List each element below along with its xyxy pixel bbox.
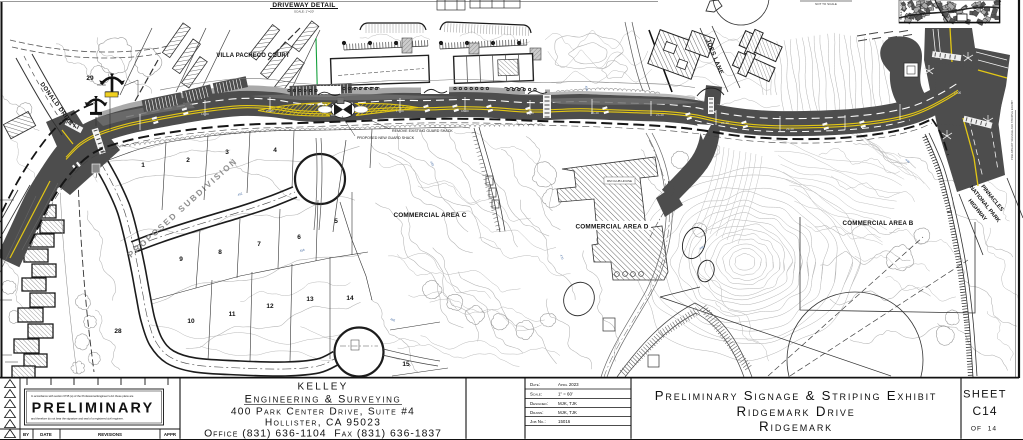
svg-text:400 Park Center Drive, Suite #: 400 Park Center Drive, Suite #4	[231, 407, 415, 418]
svg-text:SHEET: SHEET	[963, 389, 1007, 401]
svg-text:23+00: 23+00	[786, 127, 794, 131]
svg-text:2: 2	[186, 157, 190, 164]
svg-text:W16-9P: W16-9P	[86, 101, 97, 105]
svg-text:In accordance with section 673: In accordance with section 6735 (a) of t…	[31, 394, 134, 398]
svg-text:1: 1	[141, 162, 145, 169]
svg-text:VO-60: VO-60	[97, 83, 106, 87]
svg-text:REMOVE EXISTING GUARD SHACK: REMOVE EXISTING GUARD SHACK	[392, 129, 453, 133]
svg-text:VILLA PACHECO COURT: VILLA PACHECO COURT	[216, 53, 289, 59]
svg-text:April 2023: April 2023	[558, 382, 579, 387]
svg-text:RM CLUB HOUSE: RM CLUB HOUSE	[607, 179, 632, 183]
svg-text:APPR: APPR	[164, 432, 177, 437]
svg-text:8: 8	[218, 249, 222, 256]
svg-text:Preliminary Signage & Striping: Preliminary Signage & Striping Exhibit	[655, 388, 937, 403]
svg-text:NOT TO SCALE: NOT TO SCALE	[815, 2, 837, 6]
svg-text:COMMERCIAL AREA D: COMMERCIAL AREA D	[575, 224, 648, 231]
svg-text:SCALE: 1"=20': SCALE: 1"=20'	[294, 10, 314, 14]
svg-text:13: 13	[306, 296, 314, 303]
svg-text:MJK, TJK: MJK, TJK	[558, 401, 577, 406]
svg-text:BY: BY	[23, 432, 29, 437]
svg-text:11: 11	[229, 311, 236, 318]
svg-text:Date:: Date:	[530, 382, 540, 387]
svg-text:MJK, TJK: MJK, TJK	[558, 410, 577, 415]
svg-text:C14: C14	[972, 404, 997, 418]
svg-text:3: 3	[225, 149, 229, 156]
svg-text:9: 9	[179, 256, 183, 263]
svg-text:Hollister, CA 95023: Hollister, CA 95023	[265, 418, 381, 429]
svg-text:21+00: 21+00	[656, 113, 664, 117]
svg-text:COMMERCIAL AREA C: COMMERCIAL AREA C	[393, 212, 466, 219]
svg-text:Ridgemark Drive: Ridgemark Drive	[736, 404, 855, 419]
svg-text:OF 14: OF 14	[971, 426, 997, 433]
svg-text:1" = 60': 1" = 60'	[558, 392, 573, 397]
svg-text:7: 7	[257, 241, 261, 248]
svg-text:Ridgemark: Ridgemark	[759, 419, 833, 434]
svg-text:12: 12	[266, 303, 274, 310]
svg-text:PRELIMINARY SIGNAGE AND STRIPI: PRELIMINARY SIGNAGE AND STRIPING EXHIBIT	[1010, 100, 1014, 160]
svg-text:Scale:: Scale:	[530, 392, 542, 397]
svg-text:Engineering & Surveying: Engineering & Surveying	[245, 394, 402, 406]
svg-text:28: 28	[114, 328, 122, 335]
svg-text:DATE: DATE	[40, 432, 52, 437]
svg-text:16+00: 16+00	[331, 113, 339, 117]
svg-text:PRELIMINARY: PRELIMINARY	[32, 401, 155, 417]
svg-text:and therefore do not bear the: and therefore do not bear the signature …	[31, 417, 124, 421]
svg-text:Job No.:: Job No.:	[530, 419, 546, 424]
svg-text:Drawn:: Drawn:	[530, 410, 543, 415]
svg-text:REVISIONS: REVISIONS	[98, 432, 122, 437]
svg-text:15016: 15016	[558, 419, 571, 424]
svg-text:10: 10	[187, 318, 195, 325]
svg-text:COMMERCIAL AREA B: COMMERCIAL AREA B	[843, 220, 914, 227]
svg-text:6: 6	[297, 234, 301, 241]
svg-text:4: 4	[273, 147, 277, 154]
svg-text:DRIVEWAY DETAIL: DRIVEWAY DETAIL	[272, 2, 335, 9]
svg-text:Office (831) 636-1104 Fax (83: Office (831) 636-1104 Fax (831) 636-1837	[204, 429, 442, 440]
svg-text:Designed:: Designed:	[530, 401, 548, 406]
svg-text:14: 14	[346, 295, 354, 302]
svg-text:5: 5	[334, 218, 338, 225]
svg-text:KELLEY: KELLEY	[297, 382, 348, 393]
svg-text:SCALE 1"=2000': SCALE 1"=2000'	[899, 0, 903, 20]
svg-text:22+00: 22+00	[721, 121, 729, 125]
svg-text:29: 29	[86, 75, 94, 82]
svg-text:PROPOSED NEW GUARD SHACK: PROPOSED NEW GUARD SHACK	[357, 136, 415, 140]
